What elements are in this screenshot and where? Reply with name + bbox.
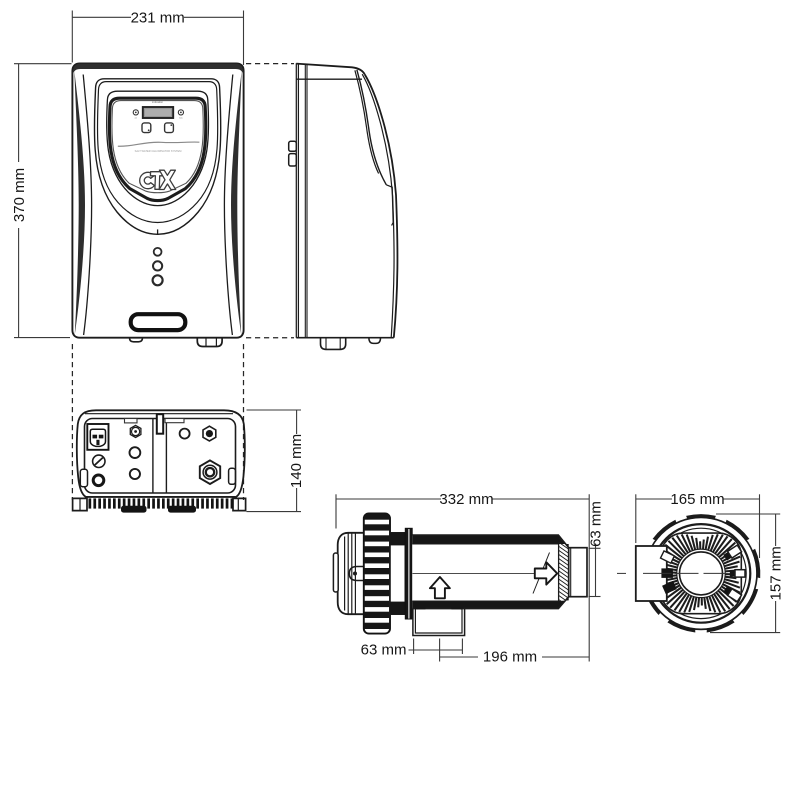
- svg-text:332 mm: 332 mm: [439, 491, 493, 508]
- svg-text:231 mm: 231 mm: [131, 10, 185, 27]
- svg-text:SALT WATER CHLORINATOR SYSTEM: SALT WATER CHLORINATOR SYSTEM: [135, 149, 182, 153]
- svg-text:indication: indication: [152, 100, 164, 104]
- svg-text:63 mm: 63 mm: [361, 642, 407, 659]
- svg-text:63 mm: 63 mm: [587, 501, 604, 547]
- svg-text:157 mm: 157 mm: [767, 546, 784, 600]
- svg-text:140 mm: 140 mm: [288, 434, 305, 488]
- svg-text:370 mm: 370 mm: [11, 168, 28, 222]
- svg-text:low: low: [179, 117, 183, 119]
- svg-text:165 mm: 165 mm: [670, 491, 724, 508]
- svg-text:196 mm: 196 mm: [483, 649, 537, 666]
